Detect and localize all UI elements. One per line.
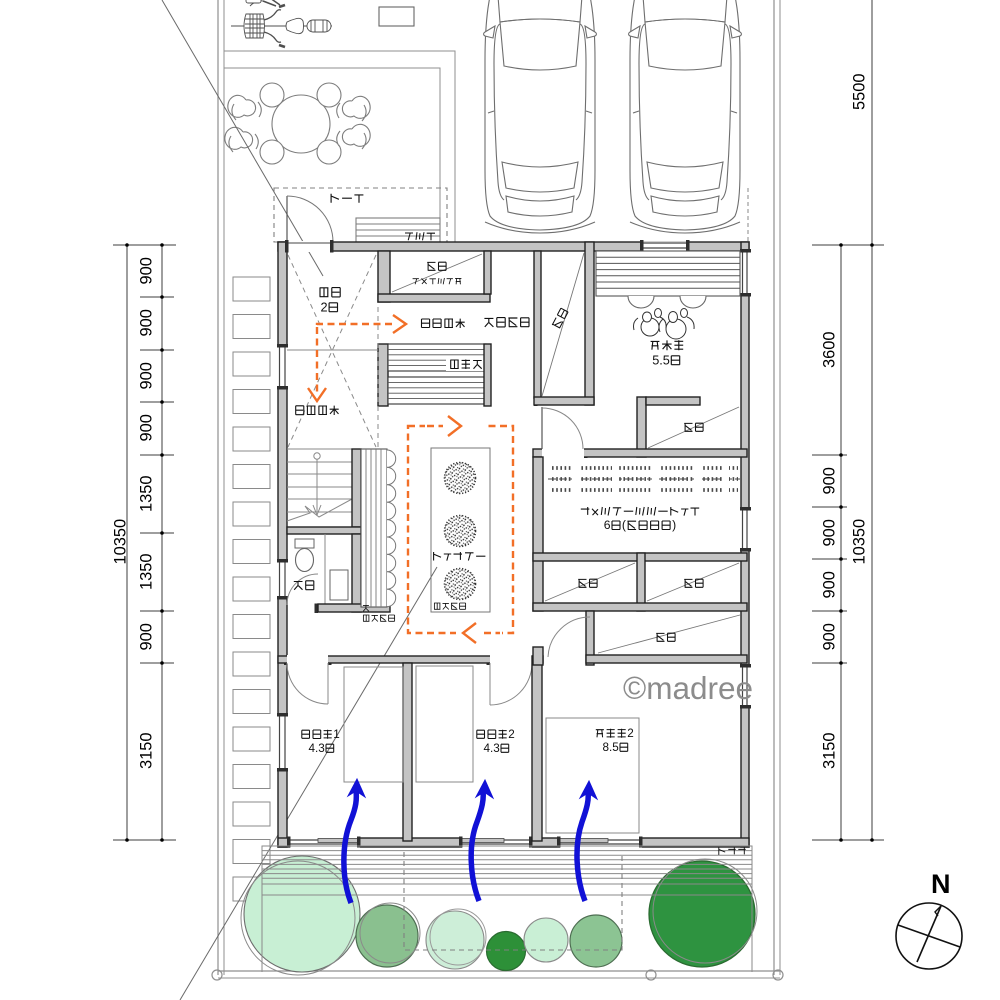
svg-text:2: 2 xyxy=(508,728,515,741)
svg-text:8.5: 8.5 xyxy=(603,741,620,754)
svg-text:900: 900 xyxy=(821,623,839,650)
svg-text:): ) xyxy=(672,518,676,532)
svg-text:2: 2 xyxy=(321,300,328,314)
svg-text:1350: 1350 xyxy=(138,554,156,590)
svg-text:5500: 5500 xyxy=(851,74,869,110)
svg-text:900: 900 xyxy=(821,519,839,546)
svg-text:900: 900 xyxy=(138,623,156,650)
svg-text:900: 900 xyxy=(138,309,156,336)
svg-text:3150: 3150 xyxy=(138,733,156,769)
svg-text:2: 2 xyxy=(627,727,634,740)
svg-text:900: 900 xyxy=(821,571,839,598)
svg-text:N: N xyxy=(931,869,951,899)
svg-text:900: 900 xyxy=(138,257,156,284)
svg-text:4.3: 4.3 xyxy=(309,742,325,755)
svg-text:©madree: ©madree xyxy=(623,670,753,706)
svg-text:3150: 3150 xyxy=(821,733,839,769)
svg-text:900: 900 xyxy=(138,362,156,389)
svg-text:900: 900 xyxy=(138,414,156,441)
svg-text:4.3: 4.3 xyxy=(484,742,500,755)
svg-text:(: ( xyxy=(622,518,626,532)
svg-text:1350: 1350 xyxy=(138,476,156,512)
svg-text:5.5: 5.5 xyxy=(652,353,670,367)
svg-text:10350: 10350 xyxy=(851,519,869,565)
svg-text:900: 900 xyxy=(821,467,839,494)
svg-text:1: 1 xyxy=(333,728,340,741)
svg-text:6: 6 xyxy=(604,518,611,532)
svg-text:3600: 3600 xyxy=(821,332,839,368)
svg-text:10350: 10350 xyxy=(112,519,130,565)
